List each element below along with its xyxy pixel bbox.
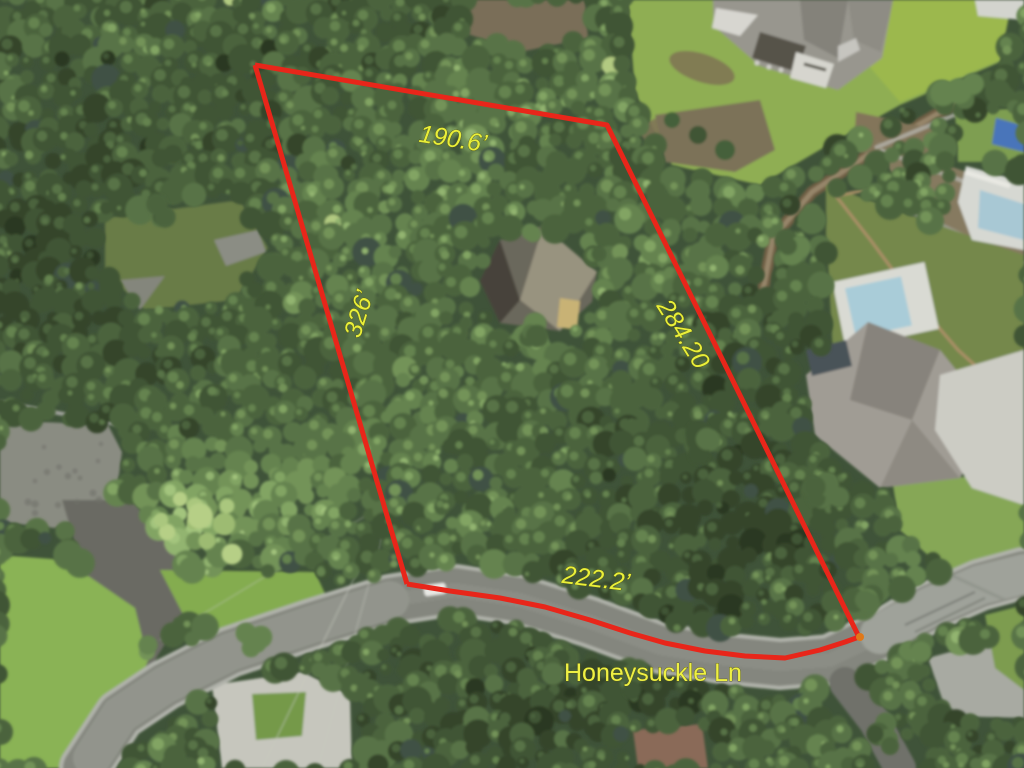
svg-text:Honeysuckle Ln: Honeysuckle Ln xyxy=(564,659,742,687)
